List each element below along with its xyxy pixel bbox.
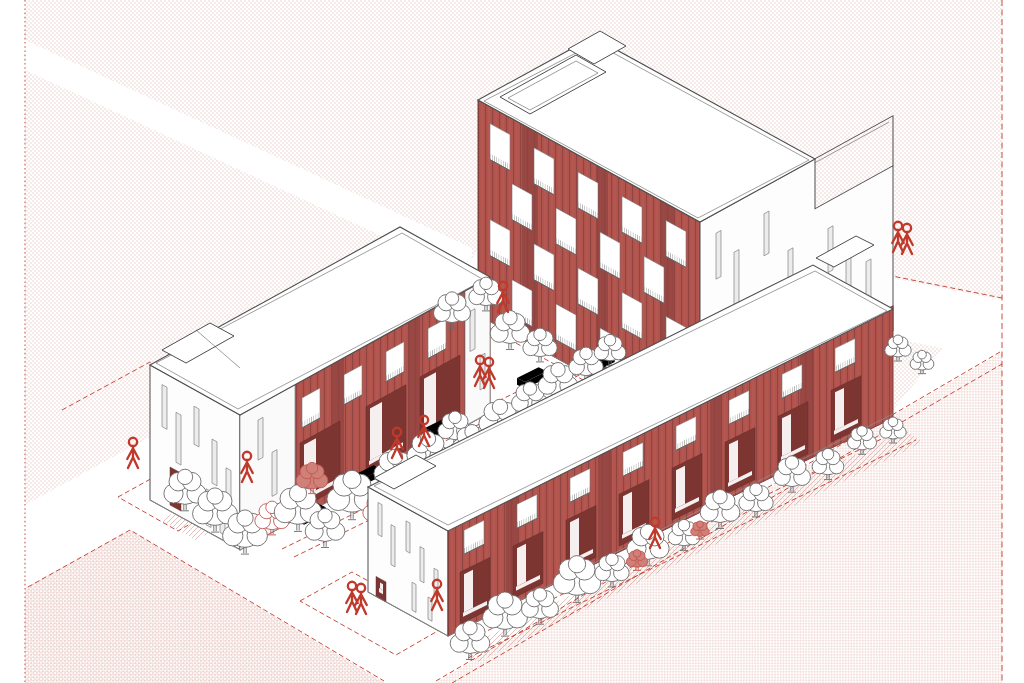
axonometric-illustration <box>0 0 1024 683</box>
scene-canvas <box>0 0 1024 683</box>
